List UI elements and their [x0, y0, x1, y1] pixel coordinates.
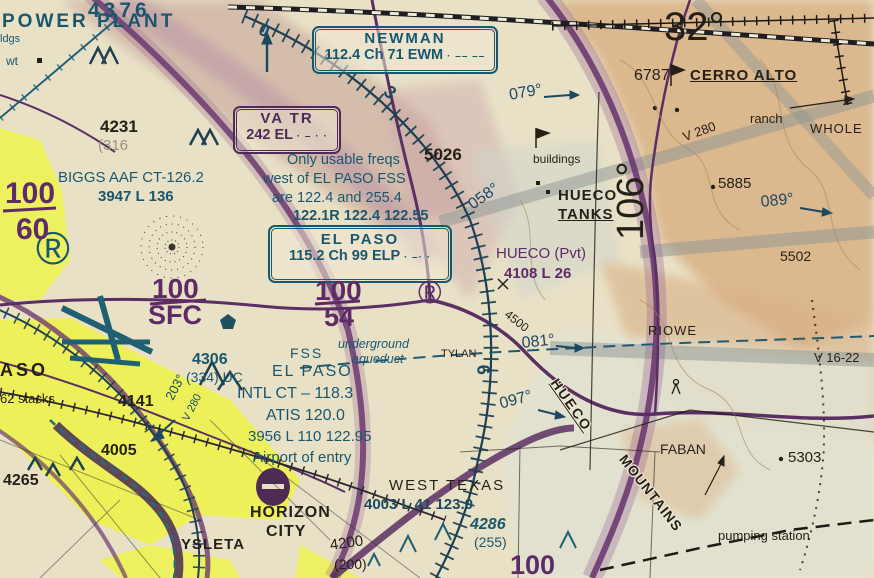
elev-4376: 4376 — [88, 0, 151, 22]
note-line-3: are 122.4 and 255.4 — [272, 191, 402, 206]
obst-4306: 4306 — [192, 352, 228, 369]
el-paso-city-fragment: ASO — [0, 361, 48, 380]
intl-ct-label: INTL CT – 118.3 — [237, 386, 353, 403]
alt-100-54-bottom: 54 — [324, 303, 354, 331]
tylan-label: TYLAN — [441, 349, 476, 361]
navaid-name: VA TR — [235, 110, 339, 127]
horizon-city-line2: CITY — [266, 524, 306, 541]
fss-label: FSS — [290, 346, 323, 361]
bldgs-fragment: ldgs — [0, 34, 20, 46]
navaid-name: EL PASO — [270, 231, 450, 248]
sectional-chart[interactable]: NEWMAN 112.4 Ch 71 EWM · –– –– EL PASO 1… — [0, 0, 874, 578]
elev-5502: 5502 — [780, 249, 811, 264]
rose-digit-6: 6 — [473, 364, 493, 376]
navaid-freq: 242 EL — [246, 127, 293, 143]
west-texas-label: WEST TEXAS — [389, 478, 505, 494]
lon-106-label: 106° — [612, 161, 652, 240]
navaid-freq: 115.2 Ch 99 ELP — [289, 248, 400, 264]
horizon-city-line1: HORIZON — [250, 505, 331, 522]
elev-5026: 5026 — [424, 146, 462, 164]
whole-label: WHOLE — [810, 122, 863, 136]
hueco-tanks-line2: TANKS — [558, 207, 614, 223]
navaid-freq: 112.4 Ch 71 EWM — [325, 47, 443, 63]
obst-4231: 4231 — [100, 118, 138, 136]
elev-5885: 5885 — [718, 176, 751, 192]
aqueduct-label-2: aqueduct — [352, 353, 403, 366]
note-line-2: west of EL PASO FSS — [263, 172, 406, 187]
hueco-pvt-data: 4108 L 26 — [504, 266, 571, 282]
obst-4286: 4286 — [470, 517, 506, 534]
navaid-name: NEWMAN — [314, 30, 496, 47]
airport-symbol-runway-bar — [262, 484, 284, 489]
alt-100-54-top: 100 — [315, 276, 362, 305]
wt-label: wt — [6, 55, 18, 68]
hueco-pvt-label: HUECO (Pvt) — [496, 246, 586, 262]
navaid-morse: · –– –– — [447, 51, 485, 62]
navaid-morse: · –· · — [404, 252, 431, 263]
note-line-4: 122.1R 122.4 122.55 — [293, 209, 428, 224]
pumping-station-label: pumping station — [718, 529, 810, 543]
crs-081: 081° — [521, 333, 556, 353]
biggs-aaf-data: 3947 L 136 — [98, 189, 174, 205]
riowe-label: RIOWE — [648, 324, 697, 338]
alt-100-sfc-bottom: SFC — [148, 301, 202, 329]
hueco-tanks-line1: HUECO — [558, 188, 617, 204]
airport-of-entry-label: Airport of entry — [253, 450, 351, 466]
lat-32-label: 32° — [664, 6, 725, 48]
va-tr-ndb-box: VA TR 242 EL · – · · — [233, 106, 341, 154]
ysleta-label: YSLETA — [181, 537, 245, 553]
newman-vortac-box: NEWMAN 112.4 Ch 71 EWM · –– –– — [312, 26, 498, 74]
elev-4005: 4005 — [101, 443, 137, 460]
cerro-alto-label: CERRO ALTO — [690, 68, 797, 84]
alt-100-bottom: 100 — [510, 551, 555, 578]
stacks-label: 62 stacks — [0, 392, 55, 406]
el-paso-fss-label: EL PASO — [272, 364, 353, 381]
elp-data-label: 3956 L 110 122.95 — [248, 429, 371, 445]
alt-100-sfc-top: 100 — [152, 274, 199, 303]
navaid-morse: · – · · — [297, 131, 328, 142]
west-texas-data: 4003 L 41 123.0 — [364, 497, 473, 513]
aqueduct-label-1: underground — [338, 338, 409, 351]
atis-label: ATIS 120.0 — [266, 408, 345, 425]
ranch-label: ranch — [750, 112, 783, 126]
pentagon-symbol — [220, 314, 236, 329]
elev-4265: 4265 — [3, 473, 39, 490]
awy-v16-22-label: V 16-22 — [814, 351, 860, 365]
elev-5303: 5303 — [788, 450, 821, 466]
obst-4306-agl: (334) UC — [186, 370, 243, 385]
vor-sunburst — [141, 216, 203, 278]
elev-6787: 6787 — [634, 68, 670, 85]
registered-symbol-2: ® — [418, 276, 442, 310]
faban-label: FABAN — [660, 442, 706, 457]
alt-100-60-bottom: 60 — [16, 214, 49, 246]
elev-4141: 4141 — [118, 394, 154, 411]
crs-089: 089° — [760, 192, 795, 212]
obst-4231-agl: (316 — [98, 138, 128, 154]
note-line-1: Only usable freqs — [287, 153, 400, 168]
obst-4286-agl: (255) — [474, 535, 507, 550]
alt-100-60-top: 100 — [5, 178, 55, 210]
biggs-aaf-label: BIGGS AAF CT-126.2 — [58, 170, 204, 186]
buildings-label: buildings — [533, 153, 580, 166]
obst-4200-agl: (200) — [334, 557, 367, 572]
